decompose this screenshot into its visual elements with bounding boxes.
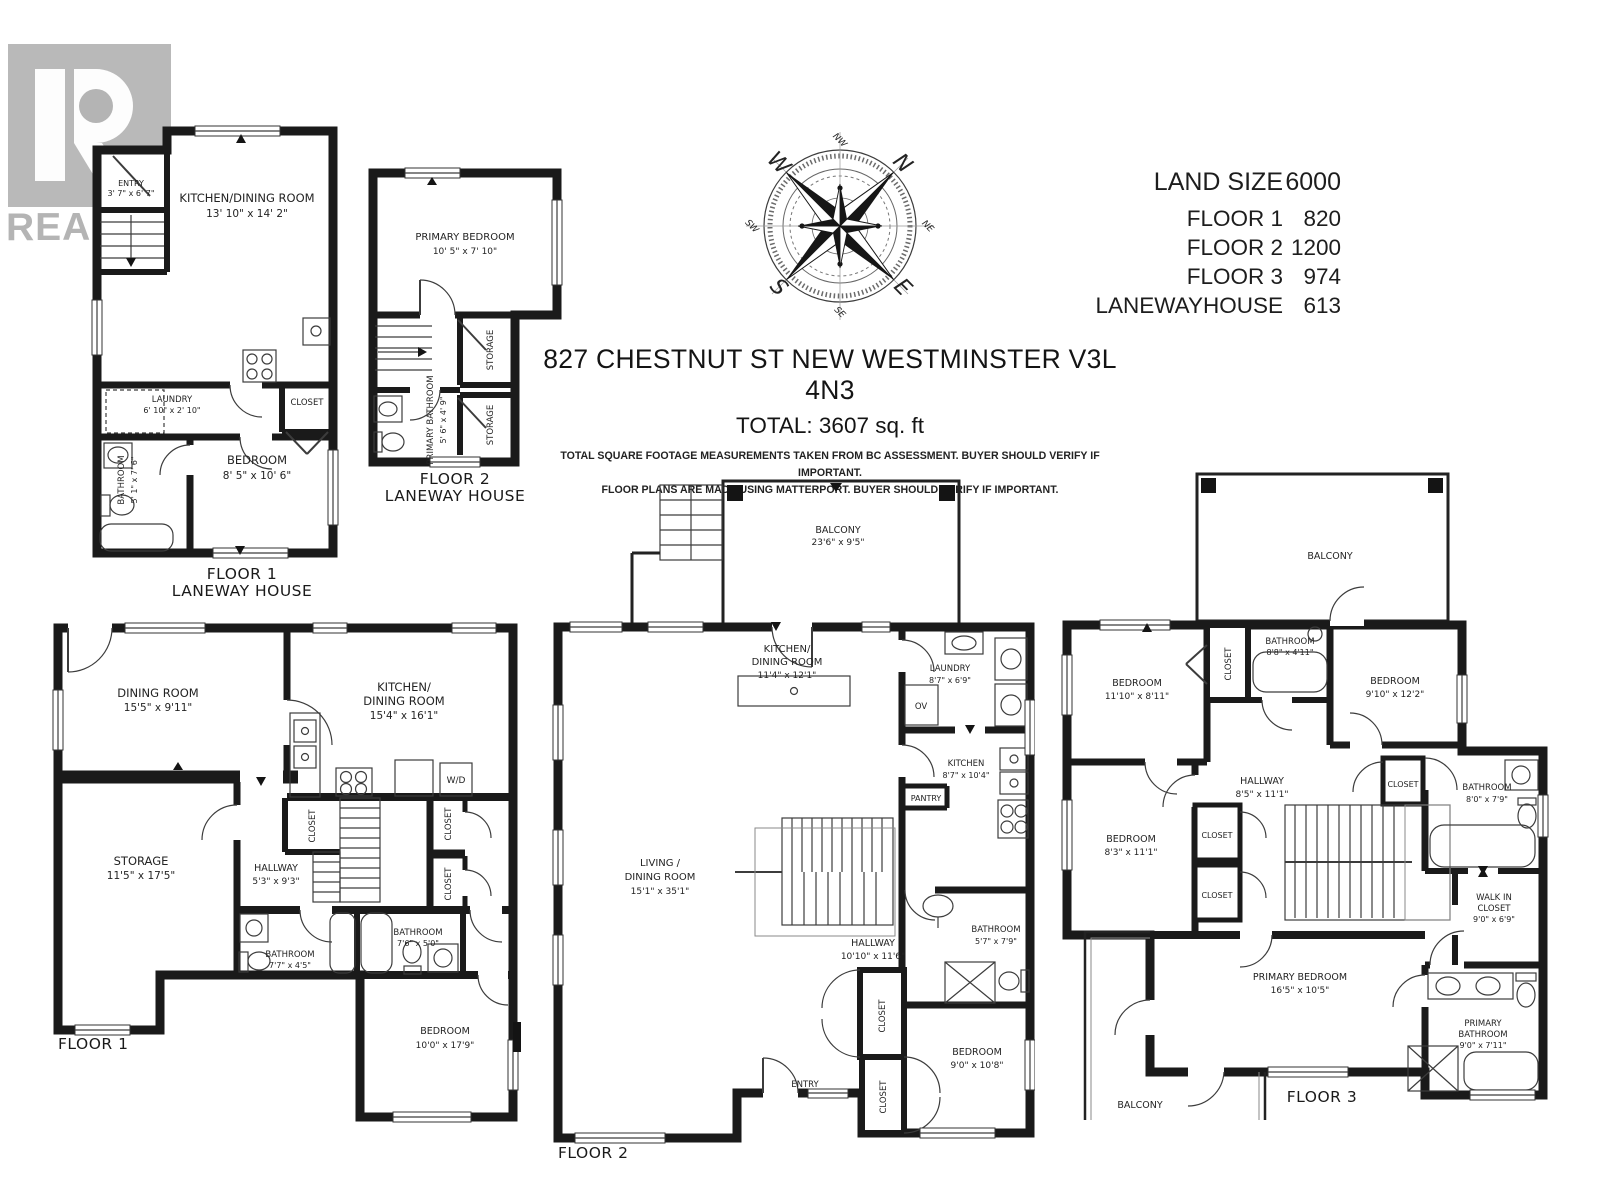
hallway-label: HALLWAY — [851, 938, 895, 949]
summary-label: FLOOR 2 — [1068, 235, 1283, 261]
summary-row: LAND SIZE6000 — [1068, 168, 1341, 197]
entry-dims: 3' 7" x 6' 7" — [107, 189, 154, 198]
laneway-floor1-plan: ENTRY 3' 7" x 6' 7" KITCHEN/DINING ROOM … — [80, 115, 360, 605]
laundry-dims: 6' 10" x 2' 10" — [143, 406, 200, 415]
closet-label: CLOSET — [290, 398, 324, 408]
bathroom1-label: BATHROOM — [1265, 637, 1314, 647]
primary-bathroom-label-1: PRIMARY — [1464, 1019, 1502, 1029]
bedroom-label: BEDROOM — [420, 1026, 470, 1037]
bedroom-label: BEDROOM — [952, 1047, 1002, 1058]
primary-bathroom-label: PRIMARY BATHROOM — [426, 375, 436, 464]
plan-caption: FLOOR 1 — [58, 1035, 128, 1053]
living-label-1: LIVING / — [640, 858, 681, 869]
bathroom1-label: BATHROOM — [265, 950, 314, 960]
closet1-label: CLOSET — [1224, 647, 1234, 681]
bedroom-dims: 9'0" x 10'8" — [951, 1061, 1004, 1071]
bedroom-dims: 8' 5" x 10' 6" — [223, 470, 291, 482]
laundry-label: LAUNDRY — [930, 664, 971, 674]
oven-label: OV — [915, 702, 928, 712]
primary-bedroom-dims: 10' 5" x 7' 10" — [433, 247, 497, 257]
dining-label: DINING ROOM — [117, 686, 198, 700]
closet2-label: CLOSET — [1387, 780, 1418, 789]
dining-dims: 15'5" x 9'11" — [124, 702, 192, 714]
storage2-label: STORAGE — [486, 405, 496, 445]
plan-caption: FLOOR 2 — [420, 470, 490, 488]
closet4-label: CLOSET — [1201, 891, 1232, 900]
bathroom2-dims: 8'0" x 7'9" — [1466, 795, 1508, 804]
living-dims: 15'1" x 35'1" — [631, 887, 690, 897]
plan-caption-2: LANEWAY HOUSE — [172, 582, 313, 600]
floor-plan-sheet: REALTOR® N — [0, 0, 1600, 1200]
hallway-label: HALLWAY — [254, 863, 298, 874]
primary-bathroom-dims: 5' 6" x 4' 9" — [439, 396, 448, 443]
laneway-floor2-plan: PRIMARY BEDROOM 10' 5" x 7' 10" STORAGE … — [360, 160, 570, 510]
kitchen-dining-dims: 13' 10" x 14' 2" — [206, 208, 288, 220]
bedroom-label: BEDROOM — [227, 453, 287, 467]
bedroom1-label: BEDROOM — [1112, 678, 1162, 689]
primary-bathroom-label-2: BATHROOM — [1458, 1030, 1507, 1040]
plan-caption: FLOOR 1 — [207, 565, 277, 583]
bedroom-dims: 10'0" x 17'9" — [416, 1041, 475, 1051]
area-summary-table: LAND SIZE6000 FLOOR 1820 FLOOR 21200 FLO… — [1068, 168, 1341, 322]
closet2-label: CLOSET — [879, 1080, 889, 1114]
summary-value: 6000 — [1283, 168, 1341, 197]
floor1-plan: DINING ROOM 15'5" x 9'11" KITCHEN/ DININ… — [45, 605, 525, 1175]
summary-value: 1200 — [1283, 235, 1341, 261]
kitchen-dims: 8'7" x 10'4" — [942, 771, 989, 780]
hallway-dims: 5'3" x 9'3" — [252, 877, 299, 887]
plan-caption-2: LANEWAY HOUSE — [385, 487, 526, 505]
kitchen-label: KITCHEN — [948, 759, 985, 769]
kitchen-dining-label-1: KITCHEN/ — [764, 644, 811, 655]
bedroom3-label: BEDROOM — [1106, 834, 1156, 845]
entry-label: ENTRY — [118, 179, 144, 188]
total-area: TOTAL: 3607 sq. ft — [540, 413, 1120, 439]
floor2-plan: BALCONY 23'6" x 9'5" KITCHEN/ DINING ROO… — [535, 460, 1035, 1170]
plan-caption: FLOOR 3 — [1287, 1088, 1357, 1106]
bedroom3-dims: 8'3" x 11'1" — [1105, 848, 1158, 858]
compass-sw-label: SW — [743, 218, 761, 236]
storage-dims: 11'5" x 17'5" — [107, 870, 175, 882]
kitchen-dining-label-2: DINING ROOM — [752, 657, 823, 668]
summary-row: FLOOR 3974 — [1068, 264, 1341, 290]
primary-bathroom-dims: 9'0" x 7'11" — [1459, 1041, 1506, 1050]
hallway-dims: 10'10" x 11'6" — [841, 952, 905, 962]
primary-bedroom-label: PRIMARY BEDROOM — [415, 232, 514, 243]
bathroom1-dims: 8'8" x 4'11" — [1266, 648, 1313, 657]
balcony-structure-top — [1197, 474, 1448, 621]
balcony-top-label: BALCONY — [1307, 551, 1353, 562]
bathroom2-label: BATHROOM — [393, 928, 442, 938]
living-label-2: DINING ROOM — [625, 872, 696, 883]
summary-row: LANEWAYHOUSE613 — [1068, 293, 1341, 319]
bathroom-label: BATHROOM — [971, 925, 1020, 935]
summary-value: 820 — [1283, 206, 1341, 232]
summary-label: LANEWAYHOUSE — [1068, 293, 1283, 319]
summary-label: FLOOR 3 — [1068, 264, 1283, 290]
bathroom-label: BATHROOM — [117, 455, 127, 504]
bedroom2-label: BEDROOM — [1370, 676, 1420, 687]
hallway-dims: 8'5" x 11'1" — [1236, 790, 1289, 800]
bedroom2-dims: 9'10" x 12'2" — [1366, 690, 1425, 700]
entry-label: ENTRY — [791, 1080, 819, 1090]
storage-label: STORAGE — [114, 854, 169, 868]
kitchen-dining-label: KITCHEN/DINING ROOM — [179, 191, 314, 205]
closet3-label: CLOSET — [1201, 831, 1232, 840]
closet1-label: CLOSET — [878, 999, 888, 1033]
walkin-label-1: WALK IN — [1476, 893, 1512, 903]
kitchen-dims: 15'4" x 16'1" — [370, 710, 438, 722]
washer-dryer-label: W/D — [447, 776, 466, 786]
summary-value: 974 — [1283, 264, 1341, 290]
floor3-plan: BALCONY BEDROOM 11'10" x 8'11" CLOSET BA… — [1035, 460, 1560, 1120]
kitchen-dining-dims: 11'4" x 12'1" — [758, 671, 817, 681]
summary-row: FLOOR 21200 — [1068, 235, 1341, 261]
hallway-label: HALLWAY — [1240, 776, 1284, 787]
compass-nw-label: NW — [830, 132, 849, 151]
closet2-label: CLOSET — [444, 807, 454, 841]
closet3-label: CLOSET — [444, 867, 454, 901]
summary-label: FLOOR 1 — [1068, 206, 1283, 232]
balcony-bottom-label: BALCONY — [1117, 1100, 1163, 1111]
pantry-label: PANTRY — [911, 794, 942, 803]
bathroom2-label: BATHROOM — [1462, 783, 1511, 793]
summary-value: 613 — [1283, 293, 1341, 319]
walkin-label-2: CLOSET — [1477, 904, 1511, 914]
balcony-structure — [632, 481, 959, 627]
summary-label: LAND SIZE — [1068, 168, 1283, 197]
storage1-label: STORAGE — [486, 330, 496, 370]
bathroom-dims: 5' 1" x 7' 6" — [130, 456, 139, 503]
primary-bedroom-label: PRIMARY BEDROOM — [1253, 972, 1347, 983]
property-address: 827 CHESTNUT ST NEW WESTMINSTER V3L 4N3 — [540, 344, 1120, 406]
closet1-label: CLOSET — [308, 809, 318, 843]
compass-ne-label: NE — [919, 219, 935, 235]
compass-se-label: SE — [832, 305, 847, 320]
kitchen-label-1: KITCHEN/ — [377, 680, 431, 694]
bathroom2-dims: 7'6" x 5'0" — [397, 939, 439, 948]
compass-rose-icon: N E S W NW NE SE SW — [742, 128, 938, 324]
bathroom-dims: 5'7" x 7'9" — [975, 937, 1017, 946]
balcony-label: BALCONY — [815, 525, 861, 536]
walkin-dims: 9'0" x 6'9" — [1473, 915, 1515, 924]
balcony-dims: 23'6" x 9'5" — [812, 538, 865, 548]
bedroom1-dims: 11'10" x 8'11" — [1105, 692, 1169, 702]
laundry-label: LAUNDRY — [152, 395, 193, 405]
bathroom1-dims: 7'7" x 4'5" — [269, 961, 311, 970]
laundry-dims: 8'7" x 6'9" — [929, 676, 971, 685]
primary-bedroom-dims: 16'5" x 10'5" — [1271, 986, 1330, 996]
kitchen-label-2: DINING ROOM — [363, 694, 444, 708]
plan-caption: FLOOR 2 — [558, 1144, 628, 1162]
summary-row: FLOOR 1820 — [1068, 206, 1341, 232]
